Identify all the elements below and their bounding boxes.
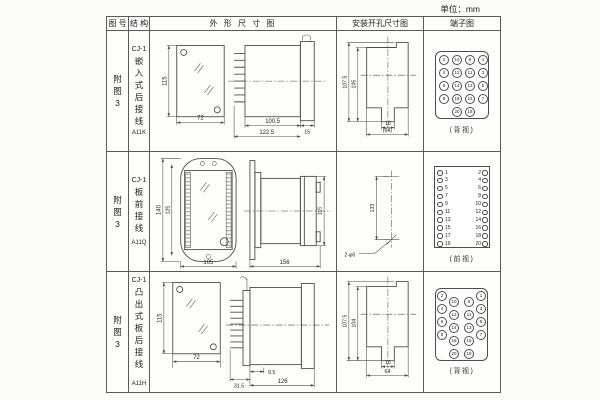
terminal- <box>437 202 443 208</box>
structure-name: 板前接线 <box>134 186 145 234</box>
model-code: A11Q <box>132 240 147 246</box>
terminal-20: 20 <box>452 107 462 117</box>
terminal-cell: 1234567891011121314151617181920 (前视) <box>424 152 500 272</box>
terminal-14: 14 <box>452 81 462 91</box>
terminal-number-4: 4 <box>467 177 481 183</box>
dim-label: 100.5 <box>265 119 281 125</box>
terminal-6: 6 <box>437 317 447 327</box>
dim-label: 126 <box>277 379 288 385</box>
dim-label: 105 <box>203 259 214 265</box>
terminal- <box>482 186 488 192</box>
terminal-16: 16 <box>452 94 462 104</box>
terminal-1: 1 <box>478 55 488 65</box>
front-view: 140 125 105 <box>156 158 236 268</box>
terminal-view-label: (前视) <box>424 254 500 264</box>
terminal-11: 11 <box>465 68 475 78</box>
dim-label: 72 <box>193 355 200 361</box>
series-label: CJ-1 <box>132 277 147 284</box>
terminal-7: 7 <box>478 94 488 104</box>
terminal-9: 9 <box>465 55 475 65</box>
terminal-18: 18 <box>465 107 475 117</box>
terminal-number-3: 3 <box>445 177 459 183</box>
install-drawing-cell: 107.5 104 16 64 <box>337 272 424 392</box>
terminal-12: 12 <box>449 310 459 320</box>
terminal- <box>482 233 488 239</box>
terminal-8: 8 <box>437 330 447 340</box>
side-view: 9.5 31.5 126 <box>226 277 329 390</box>
dim-label: 156 <box>279 259 290 265</box>
header-install-dims: 安装开孔尺寸图 <box>337 17 424 31</box>
terminal-cell: 210914121136141358161572018 (背视) <box>424 272 500 392</box>
terminal-diagram-rear: 210914121136141358161572018 <box>435 51 489 119</box>
dim-label: 122.5 <box>259 130 275 136</box>
terminal-number-17: 17 <box>445 233 459 239</box>
dim-label: 72 <box>197 116 204 122</box>
install-drawing-cell: 133 2-φ6 <box>337 152 424 272</box>
structure-cell: CJ-1 板前接线 A11Q <box>129 152 150 272</box>
dim-label: 15 <box>304 130 310 136</box>
terminal-number-11: 11 <box>445 209 459 215</box>
series-label: CJ-1 <box>132 46 147 53</box>
terminal-10: 10 <box>449 297 459 307</box>
terminal- <box>482 202 488 208</box>
terminal- <box>437 241 443 247</box>
dim-label: 115 <box>162 76 168 86</box>
install-drawing-cell: 107.5 105 16 (64) <box>337 31 424 152</box>
terminal-view-label: (背视) <box>424 125 500 135</box>
structure-name: 凸出式板后接线 <box>134 286 145 370</box>
outline-drawing-cell: 115 72 100.5 15 122.5 <box>150 31 337 152</box>
terminal-number-16: 16 <box>467 225 481 231</box>
outline-drawing-a11h: 115 72 9.5 31.5 126 <box>151 274 336 390</box>
terminal-10: 10 <box>452 55 462 65</box>
figure-no: 附图3 <box>112 314 123 350</box>
terminal-number-9: 9 <box>445 201 459 207</box>
outline-drawing-cell: 140 125 105 156 <box>150 152 337 272</box>
dim-label: 31.5 <box>233 383 243 389</box>
terminal-number-2: 2 <box>467 170 481 176</box>
install-drawing-a11h: 107.5 104 16 64 <box>337 274 423 390</box>
terminal- <box>437 233 443 239</box>
terminal- <box>437 194 443 200</box>
terminal-8: 8 <box>439 94 449 104</box>
terminal-12: 12 <box>452 68 462 78</box>
dim-label: 16 <box>385 121 391 127</box>
hole-callout: 2-φ6 <box>344 252 355 258</box>
header-structure: 结 构 <box>129 17 150 31</box>
structure-cell: CJ-1 嵌入式后接线 A11K <box>129 31 150 152</box>
side-view: 156 115 <box>243 160 330 268</box>
terminal-1: 1 <box>476 291 486 301</box>
terminal-3: 3 <box>476 304 486 314</box>
terminal-4: 4 <box>437 304 447 314</box>
terminal-number-13: 13 <box>445 217 459 223</box>
terminal-6: 6 <box>439 81 449 91</box>
terminal-3: 3 <box>478 68 488 78</box>
terminal-4: 4 <box>439 68 449 78</box>
terminal-number-5: 5 <box>445 185 459 191</box>
dim-label: 105 <box>351 80 357 89</box>
terminal-5: 5 <box>478 81 488 91</box>
front-view: 115 72 <box>162 45 224 124</box>
document-page: 单位：mm 图 号 结 构 外 形 尺 寸 图 安装开孔尺寸图 端子图 附图3 … <box>0 0 600 400</box>
terminal- <box>482 225 488 231</box>
terminal- <box>482 217 488 223</box>
spec-table: 图 号 结 构 外 形 尺 寸 图 安装开孔尺寸图 端子图 附图3 CJ-1 嵌… <box>106 16 501 393</box>
dim-label: 115 <box>317 206 323 214</box>
outline-drawing-cell: 115 72 9.5 31.5 126 <box>150 272 337 392</box>
terminal-9: 9 <box>464 297 474 307</box>
terminal-number-7: 7 <box>445 193 459 199</box>
terminal-number-14: 14 <box>467 217 481 223</box>
structure-cell: CJ-1 凸出式板后接线 A11H <box>129 272 150 392</box>
terminal-13: 13 <box>464 323 474 333</box>
header-terminal-diagram: 端子图 <box>424 17 500 31</box>
dim-label: 133 <box>370 203 376 212</box>
outline-drawing-a11q: 140 125 105 156 <box>151 154 336 270</box>
terminal- <box>437 217 443 223</box>
model-code: A11K <box>132 130 146 136</box>
terminal-11: 11 <box>464 310 474 320</box>
terminal-number-19: 19 <box>445 241 459 247</box>
terminal- <box>437 225 443 231</box>
terminal-13: 13 <box>465 81 475 91</box>
figure-no: 附图3 <box>112 73 123 109</box>
dim-label: 104 <box>351 319 357 328</box>
terminal-2: 2 <box>439 55 449 65</box>
terminal-number-18: 18 <box>467 233 481 239</box>
figure-no-cell: 附图3 <box>107 272 129 392</box>
terminal- <box>437 210 443 216</box>
figure-no: 附图3 <box>112 194 123 230</box>
header-figure-no: 图 号 <box>107 17 129 31</box>
terminal-15: 15 <box>465 94 475 104</box>
terminal-number-8: 8 <box>467 193 481 199</box>
structure-name: 嵌入式后接线 <box>134 55 145 127</box>
terminal-cell: 210914121136141358161572018 (背视) <box>424 31 500 152</box>
terminal-number-6: 6 <box>467 185 481 191</box>
dim-label: 140 <box>156 204 162 215</box>
dim-label: 107.5 <box>342 315 348 328</box>
terminal-diagram-rear: 210914121136141358161572018 <box>435 288 488 361</box>
terminal-20: 20 <box>449 349 459 359</box>
terminal- <box>482 194 488 200</box>
terminal-number-15: 15 <box>445 225 459 231</box>
terminal-number-10: 10 <box>467 201 481 207</box>
header-outline-dims: 外 形 尺 寸 图 <box>150 17 337 31</box>
dim-label: 16 <box>385 360 391 366</box>
front-view: 115 72 <box>157 283 220 368</box>
install-drawing-a11k: 107.5 105 16 (64) <box>337 33 423 149</box>
terminal- <box>482 170 488 176</box>
model-code: A11H <box>132 381 147 387</box>
terminal- <box>482 178 488 184</box>
terminal-2: 2 <box>437 291 447 301</box>
terminal-5: 5 <box>476 317 486 327</box>
terminal-number-20: 20 <box>467 241 481 247</box>
dim-label: 64 <box>385 369 391 375</box>
terminal-15: 15 <box>464 336 474 346</box>
unit-label: 单位：mm <box>380 3 480 15</box>
terminal- <box>437 170 443 176</box>
terminal-number-1: 1 <box>445 170 459 176</box>
terminal- <box>482 241 488 247</box>
dim-label: 115 <box>157 313 163 323</box>
terminal-16: 16 <box>449 336 459 346</box>
dim-label: (64) <box>383 128 393 134</box>
dim-label: 9.5 <box>268 370 275 376</box>
terminal-number-12: 12 <box>467 209 481 215</box>
terminal-14: 14 <box>449 323 459 333</box>
figure-no-cell: 附图3 <box>107 152 129 272</box>
terminal-diagram-front: 1234567891011121314151617181920 <box>434 166 490 248</box>
terminal-18: 18 <box>464 349 474 359</box>
terminal- <box>482 210 488 216</box>
side-view: 100.5 15 122.5 <box>228 35 327 139</box>
figure-no-cell: 附图3 <box>107 31 129 152</box>
dim-label: 125 <box>165 205 171 214</box>
dim-label: 107.5 <box>342 75 348 88</box>
terminal- <box>437 178 443 184</box>
install-drawing-a11q: 133 2-φ6 <box>337 154 423 270</box>
series-label: CJ-1 <box>132 177 147 184</box>
terminal-view-label: (背视) <box>424 366 500 376</box>
terminal- <box>437 186 443 192</box>
terminal-7: 7 <box>476 330 486 340</box>
outline-drawing-a11k: 115 72 100.5 15 122.5 <box>151 33 336 149</box>
